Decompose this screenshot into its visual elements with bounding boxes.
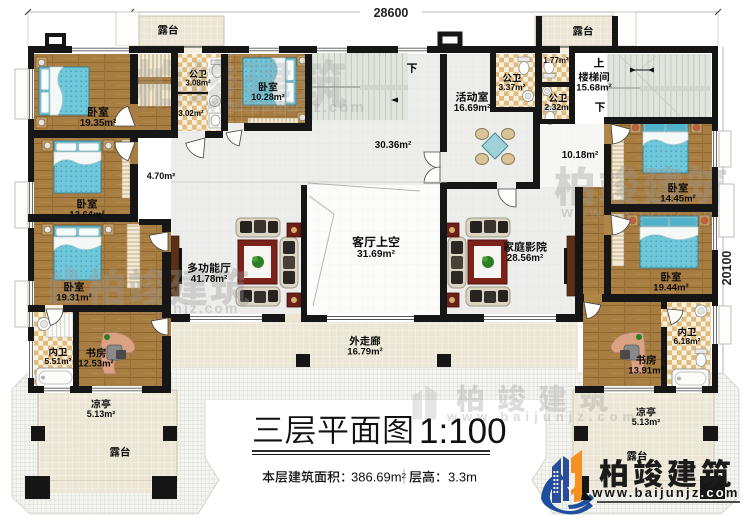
svg-text:30.36m²: 30.36m²: [375, 140, 412, 151]
svg-text:2.32m²: 2.32m²: [545, 102, 572, 112]
svg-text:4.70m²: 4.70m²: [147, 171, 176, 181]
svg-text:19.35m²: 19.35m²: [80, 118, 117, 129]
svg-text:3.37m²: 3.37m²: [499, 82, 526, 92]
svg-text:12.53m²: 12.53m²: [78, 359, 113, 370]
svg-text:5.13m²: 5.13m²: [632, 417, 661, 427]
svg-text:3.08m²: 3.08m²: [185, 79, 211, 88]
svg-text:6.18m²: 6.18m²: [674, 336, 701, 346]
svg-text:20100: 20100: [720, 251, 734, 286]
svg-text:13.91m²: 13.91m²: [628, 366, 663, 377]
svg-text:5.13m²: 5.13m²: [87, 409, 116, 419]
svg-text:14.45m²: 14.45m²: [660, 194, 695, 205]
svg-text:16.79m²: 16.79m²: [347, 347, 382, 358]
svg-text:15.68m²: 15.68m²: [576, 83, 611, 94]
svg-text:1.77m²: 1.77m²: [543, 56, 569, 65]
svg-text:1:100: 1:100: [419, 412, 507, 451]
svg-text:28600: 28600: [374, 6, 409, 20]
svg-text:5.51m²: 5.51m²: [45, 356, 72, 366]
svg-text:13.64m²: 13.64m²: [69, 210, 104, 221]
svg-text:3.02m²: 3.02m²: [178, 109, 204, 118]
svg-text:41.78m²: 41.78m²: [191, 274, 228, 285]
svg-text:31.69m²: 31.69m²: [357, 249, 396, 260]
svg-text:28.56m²: 28.56m²: [507, 253, 544, 264]
svg-text:3.3m: 3.3m: [448, 470, 477, 485]
svg-text:10.28m²: 10.28m²: [251, 92, 285, 102]
svg-text:19.44m²: 19.44m²: [653, 283, 688, 294]
svg-text:386.69m²: 386.69m²: [351, 470, 407, 485]
svg-text:16.69m²: 16.69m²: [454, 103, 491, 114]
svg-text:10.18m²: 10.18m²: [562, 150, 599, 161]
svg-text:19.31m²: 19.31m²: [56, 293, 91, 304]
